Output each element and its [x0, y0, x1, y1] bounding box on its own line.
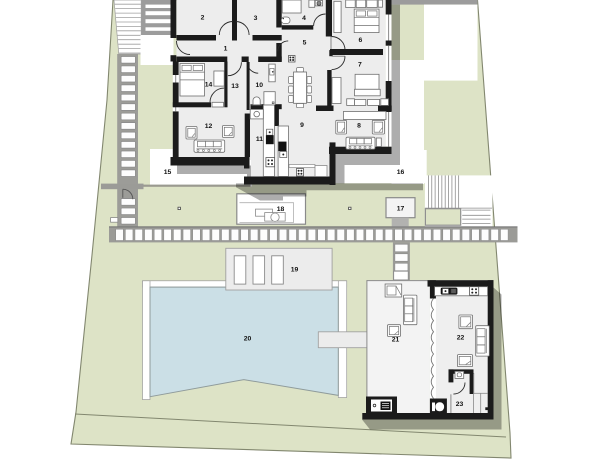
svg-text:4: 4	[302, 15, 306, 22]
svg-text:11: 11	[256, 136, 263, 143]
svg-text:8: 8	[357, 122, 361, 129]
svg-text:23: 23	[456, 401, 464, 408]
svg-text:18: 18	[277, 206, 285, 213]
svg-text:22: 22	[457, 335, 465, 342]
svg-text:9: 9	[300, 122, 304, 129]
svg-text:6: 6	[359, 37, 363, 44]
svg-text:12: 12	[205, 123, 213, 130]
svg-text:19: 19	[291, 267, 299, 274]
svg-text:13: 13	[231, 83, 239, 90]
svg-text:21: 21	[392, 337, 400, 344]
svg-text:17: 17	[397, 205, 405, 212]
svg-text:10: 10	[256, 82, 264, 89]
svg-text:1: 1	[224, 45, 228, 52]
svg-text:3: 3	[254, 15, 258, 22]
svg-text:15: 15	[164, 169, 172, 176]
svg-text:20: 20	[244, 335, 252, 342]
svg-text:16: 16	[397, 169, 405, 176]
svg-text:14: 14	[205, 81, 213, 88]
svg-text:7: 7	[358, 62, 362, 69]
svg-text:2: 2	[201, 14, 205, 21]
svg-text:5: 5	[303, 39, 307, 46]
